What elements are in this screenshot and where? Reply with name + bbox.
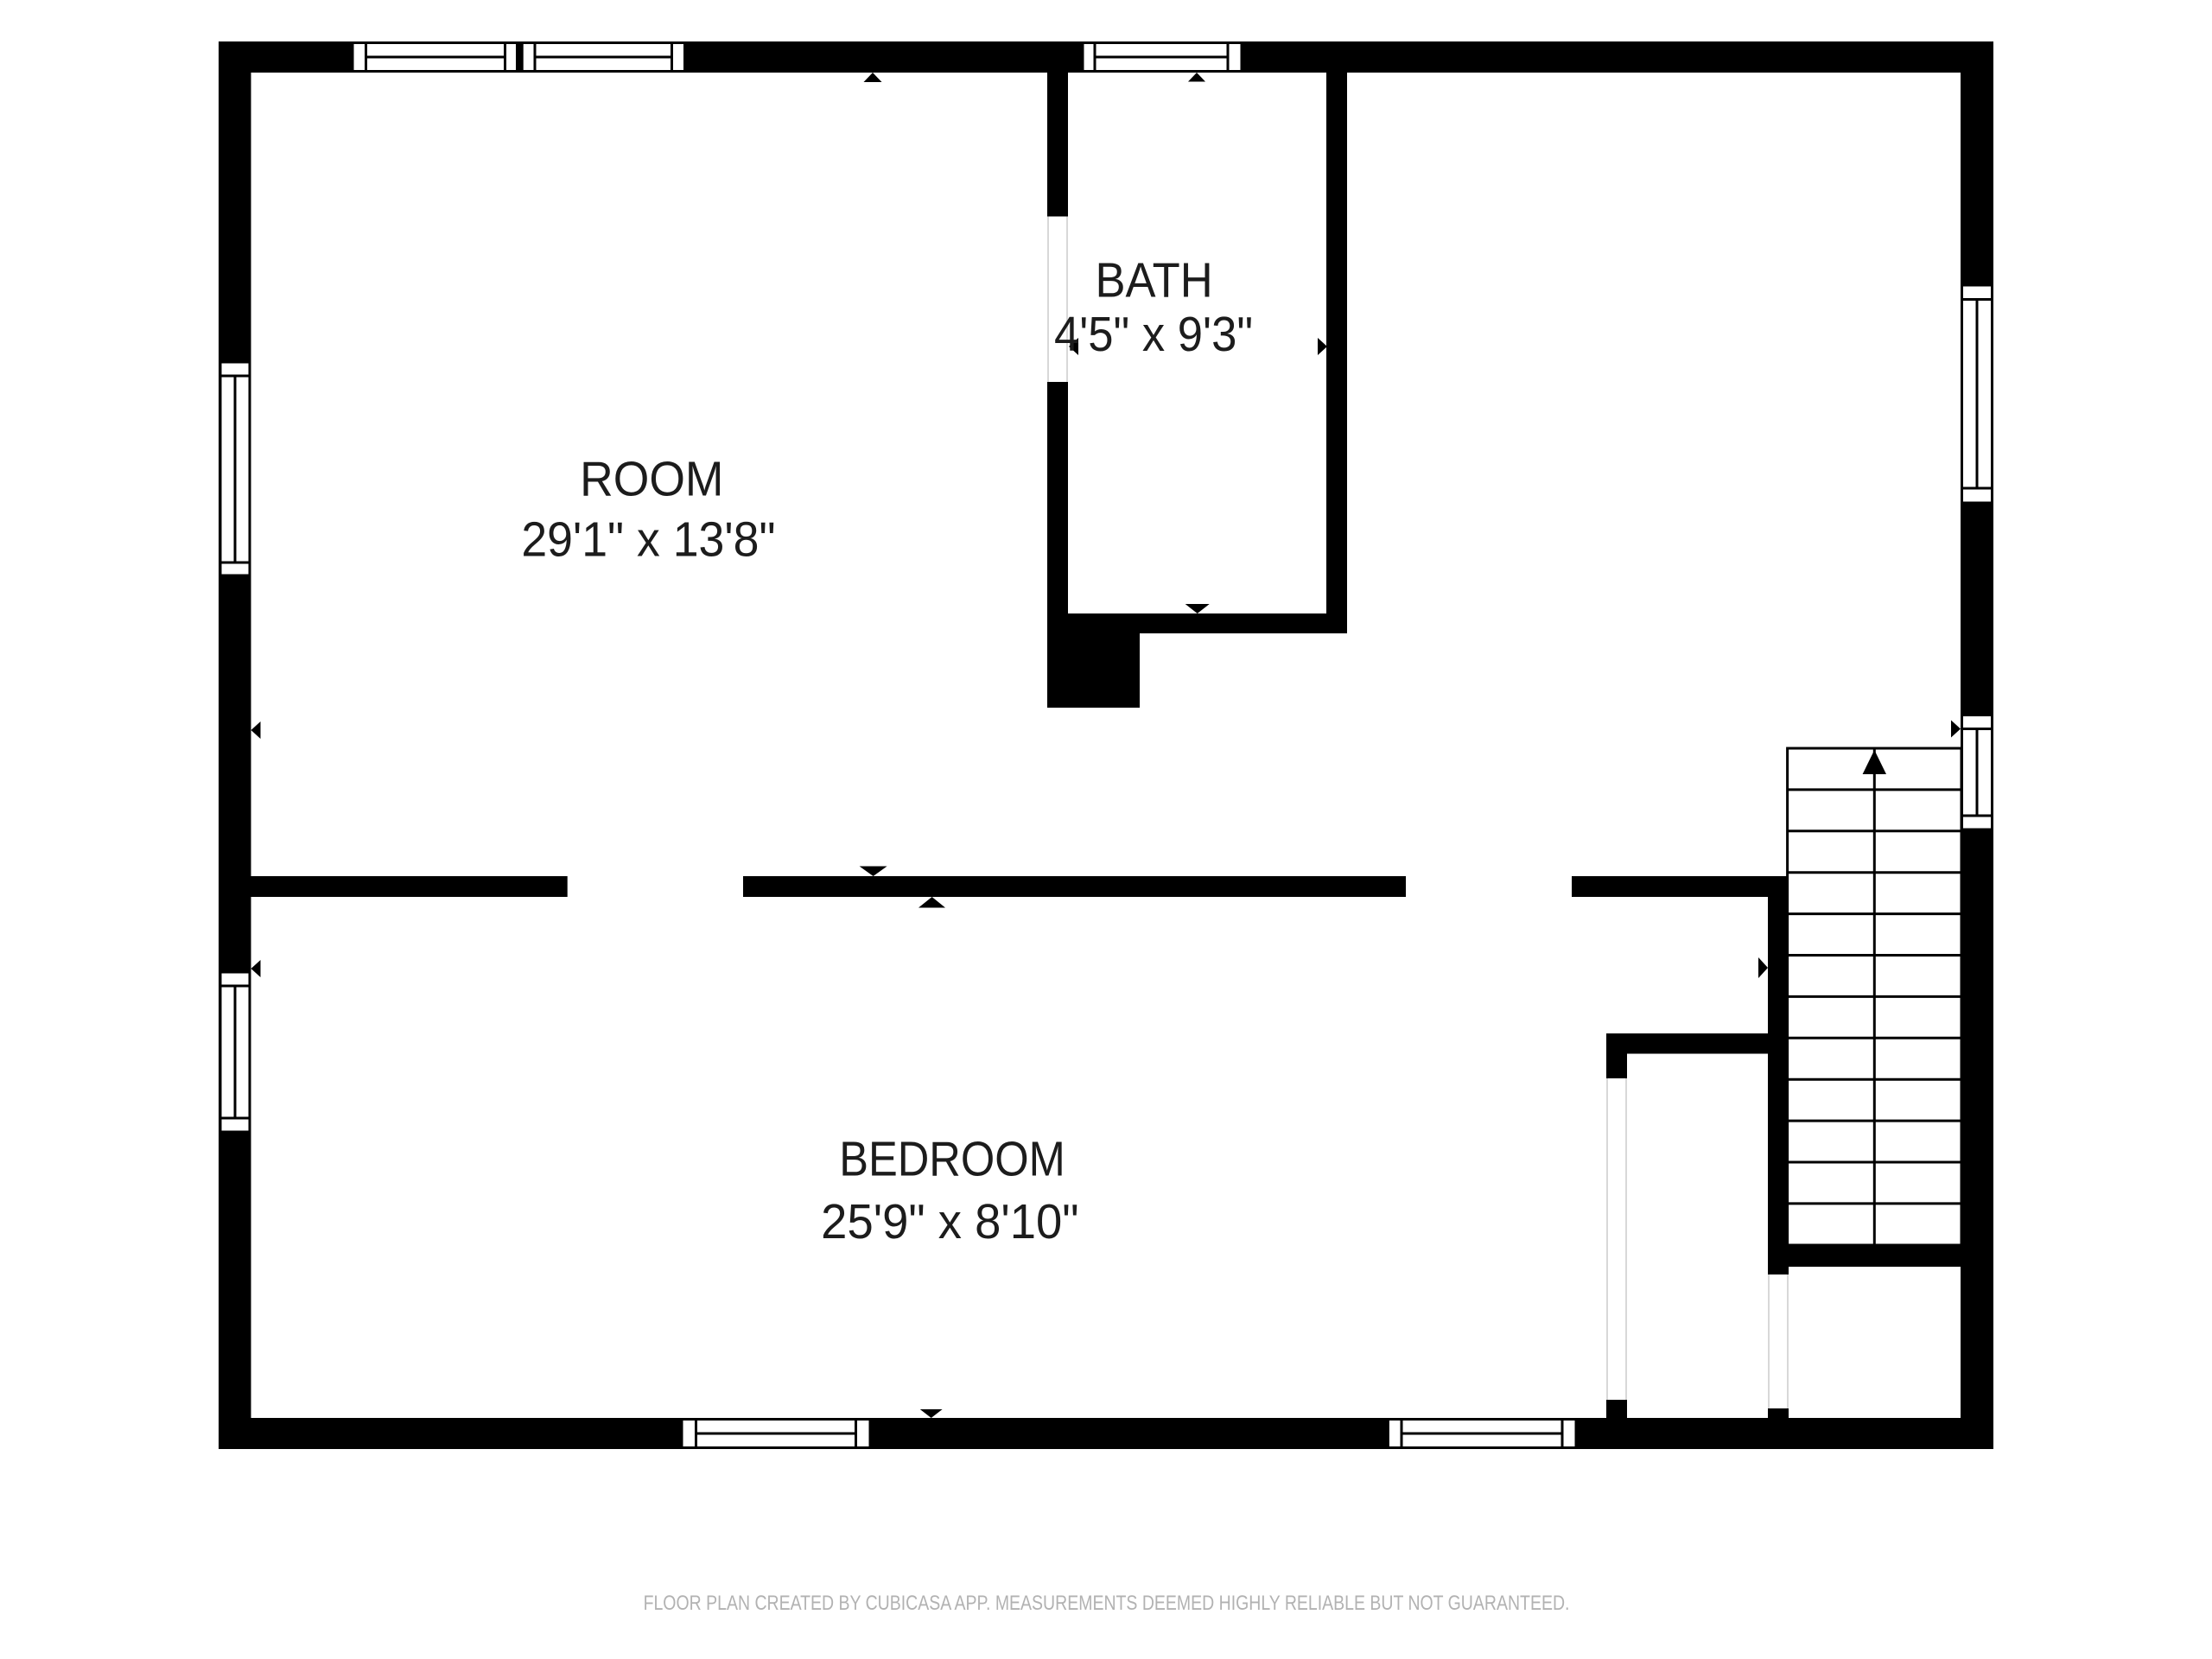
svg-text:BEDROOM: BEDROOM	[839, 1132, 1065, 1186]
svg-text:25'9" x 8'10": 25'9" x 8'10"	[821, 1194, 1078, 1249]
svg-text:29'1" x 13'8": 29'1" x 13'8"	[521, 512, 775, 567]
svg-text:4'5" x 9'3": 4'5" x 9'3"	[1054, 306, 1253, 361]
svg-text:ROOM: ROOM	[580, 451, 723, 506]
svg-text:BATH: BATH	[1095, 253, 1212, 308]
svg-text:FLOOR PLAN CREATED BY CUBICASA: FLOOR PLAN CREATED BY CUBICASA APP. MEAS…	[644, 1591, 1570, 1614]
